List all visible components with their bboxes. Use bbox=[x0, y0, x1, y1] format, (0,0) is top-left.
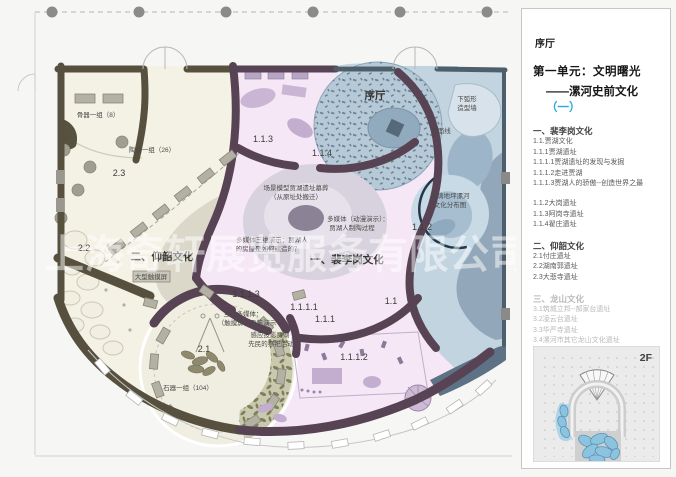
outline-list: 一、裴李岗文化 1.1.贾湖文化 1.1.1贾湖遗址 1.1.1.1贾湖遗址的发… bbox=[533, 125, 670, 347]
outline-item: 1.1.1贾湖遗址 bbox=[533, 148, 670, 159]
label-2-1: 2.1 bbox=[198, 344, 211, 354]
label-1-1-1-3: 1.1.1.3 bbox=[232, 289, 260, 299]
watermark-text: 上海奇轩展览服务有限公司 bbox=[44, 233, 516, 277]
label-1-1-3: 1.1.3 bbox=[253, 134, 273, 144]
label-mm-anim-1: 多媒体（动漫演示）： bbox=[327, 214, 389, 223]
label-interactive-1: 互动多媒体： bbox=[224, 309, 263, 318]
label-1-1-1-2: 1.1.1.2 bbox=[340, 352, 368, 362]
screenshot-stage: 骨器一组（8） 陶器一组（26） 2.3 2.2 二、仰韶文化 大型触摸屏 2.… bbox=[0, 0, 676, 477]
label-ground-line: 地面线 bbox=[431, 126, 451, 135]
label-lobby: 序厅 bbox=[365, 89, 386, 102]
label-arc-wall-2: 造型墙 bbox=[457, 103, 477, 112]
outline-item: 一、裴李岗文化 bbox=[533, 125, 670, 137]
outline-item: 1.1.4翟庄遗址 bbox=[533, 220, 670, 231]
label-1-1-4: 1.1.4 bbox=[312, 148, 332, 158]
floor-plan: 骨器一组（8） 陶器一组（26） 2.3 2.2 二、仰韶文化 大型触摸屏 2.… bbox=[0, 0, 516, 477]
outline-item: 1.1.1.1贾湖遗址的发现与发掘 bbox=[533, 158, 670, 169]
label-2-3: 2.3 bbox=[113, 168, 126, 178]
floor-key-map: 2F bbox=[533, 346, 660, 462]
outline-item: 2.1付庄遗址 bbox=[533, 252, 670, 263]
label-1-1: 1.1 bbox=[385, 296, 398, 306]
label-bone-group: 骨器一组（8） bbox=[77, 110, 120, 119]
outline-item: 三、龙山文化 bbox=[533, 293, 670, 305]
floor-label: 2F bbox=[640, 352, 652, 364]
outline-item: 1.1.1.3贾湖人的骄傲--创造世界之最 bbox=[533, 179, 670, 190]
outline-item: 1.1.贾湖文化 bbox=[533, 137, 670, 148]
label-pottery-group: 陶器一组（26） bbox=[129, 145, 175, 154]
label-glass-2: 文化分布图 bbox=[434, 200, 467, 209]
legend-panel: 序厅 第一单元：文明曙光 ——漯河史前文化（一） 一、裴李岗文化 1.1.贾湖文… bbox=[521, 8, 671, 469]
label-mm-anim-2: 贾湖人制陶过程 bbox=[329, 223, 375, 232]
outline-item: 2.2湖南郭遗址 bbox=[533, 262, 670, 273]
outline-item: 1.1.1.2走进贾湖 bbox=[533, 169, 670, 180]
unit-title: 第一单元：文明曙光 bbox=[533, 63, 670, 79]
label-glass-1: 玻璃地坪漯河 bbox=[431, 191, 471, 200]
outline-item: 2.3大悲寺遗址 bbox=[533, 273, 670, 284]
unit-subtitle: ——漯河史前文化（一） bbox=[546, 83, 670, 115]
outline-item: 1.1.2大岗遗址 bbox=[533, 199, 670, 210]
label-interactive-2: （触摸屏）骨笛演示 bbox=[218, 318, 277, 327]
label-1-1-1: 1.1.1 bbox=[315, 314, 335, 324]
label-stone-group: 石器一组（104） bbox=[163, 383, 213, 392]
label-scene-model-1: 场景模型贾湖遗址墓葬 bbox=[264, 183, 330, 192]
label-arc-wall-1: 下弧形 bbox=[457, 94, 477, 103]
unit-subtitle-number: （一） bbox=[546, 102, 581, 114]
label-sensor-2: 先民的祭祀活动 bbox=[248, 339, 294, 348]
panel-lobby-heading: 序厅 bbox=[535, 35, 670, 50]
unit-subtitle-text: ——漯河史前文化 bbox=[546, 86, 638, 98]
outline-item: 3.2凌云台遗址 bbox=[533, 315, 670, 326]
outline-item: 二、仰韶文化 bbox=[533, 240, 670, 252]
label-scene-model-2: （从原址处搬迁） bbox=[270, 192, 322, 201]
outline-item: 3.3华严寺遗址 bbox=[533, 326, 670, 337]
outline-item: 3.1筑城立邦--郝家台遗址 bbox=[533, 305, 670, 316]
key-map-drawing bbox=[534, 347, 659, 461]
label-sensor-1: 感应投影贾湖 bbox=[251, 330, 291, 339]
label-1-1-2: 1.1.2 bbox=[412, 222, 432, 232]
label-1-1-1-1: 1.1.1.1 bbox=[290, 302, 318, 312]
outline-item: 1.1.3阿岗寺遗址 bbox=[533, 210, 670, 221]
